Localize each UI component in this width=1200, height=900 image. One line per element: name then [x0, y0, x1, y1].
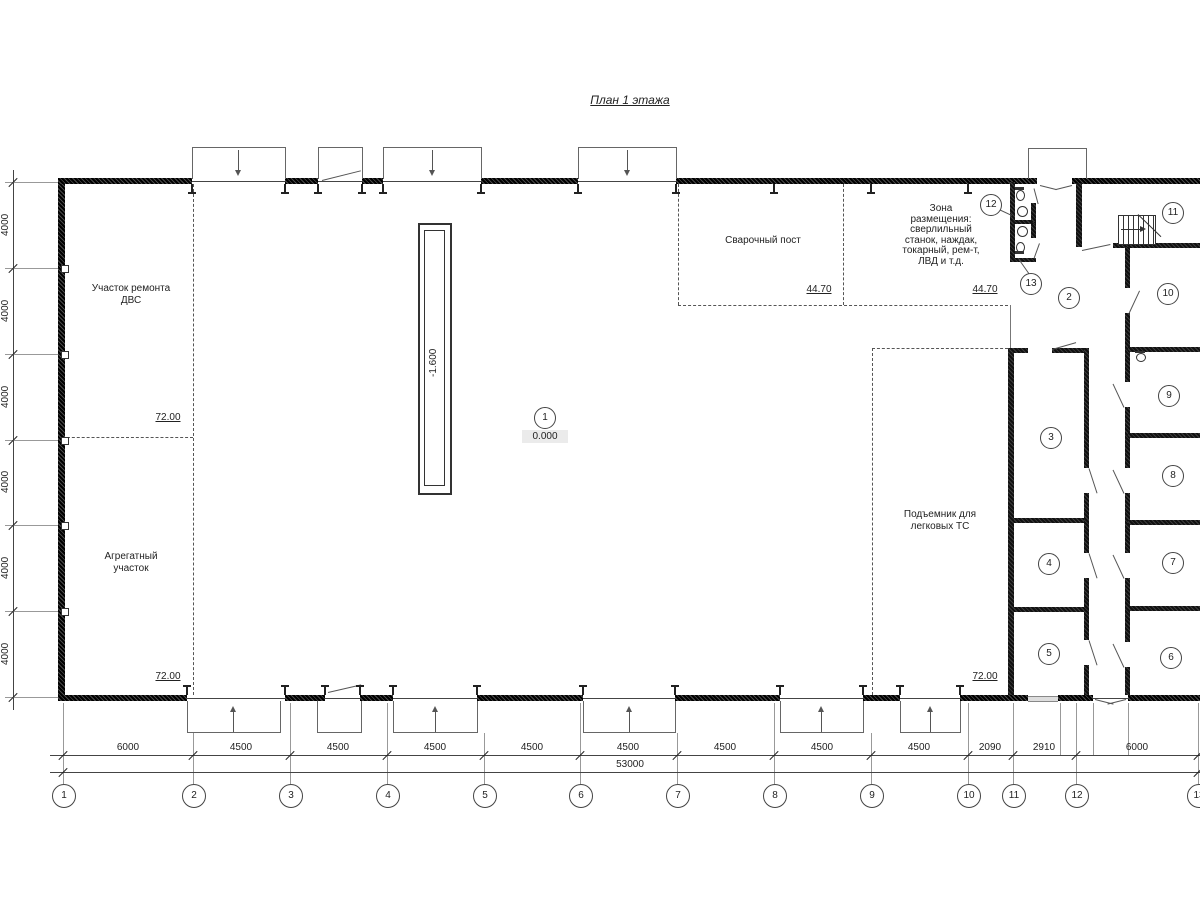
column-mark [779, 687, 781, 695]
column-mark [382, 184, 384, 192]
column-mark [61, 608, 69, 616]
dim-total-label: 53000 [600, 759, 660, 770]
dimension-line [50, 755, 1200, 756]
wall-segment [1125, 667, 1130, 695]
entry-arrow-icon [432, 150, 433, 174]
wall-segment [481, 178, 578, 184]
column-mark [899, 687, 901, 695]
toilet-icon [1015, 251, 1024, 254]
axis-bubble: 9 [860, 784, 884, 808]
wall-segment [863, 695, 900, 701]
dashed-boundary [62, 437, 193, 438]
column-mark [284, 687, 286, 695]
dimension-line [50, 772, 1200, 773]
wall-segment [675, 695, 780, 701]
wall-segment [960, 695, 1028, 701]
wall-segment [1076, 183, 1082, 247]
door-swing [1034, 188, 1039, 204]
column-mark [61, 522, 69, 530]
gate-canopy [317, 701, 362, 733]
wall-segment [1084, 348, 1089, 468]
door-swing [1082, 244, 1111, 251]
door-opening [318, 181, 362, 182]
dim-label: 4000 [0, 624, 12, 684]
door-swing [1055, 185, 1072, 190]
door-swing [1089, 553, 1098, 578]
area-value: 44.70 [963, 284, 1007, 295]
column-mark [773, 184, 775, 192]
wall-segment [1014, 518, 1088, 523]
floor-level-value: 0.000 [522, 430, 568, 443]
room-bubble: 4 [1038, 553, 1060, 575]
dim-label: 4000 [0, 195, 12, 255]
column-mark [61, 351, 69, 359]
axis-bubble: 1 [52, 784, 76, 808]
dim-label: 4500 [308, 742, 368, 753]
wall-segment [1010, 258, 1036, 262]
column-mark [361, 184, 363, 192]
column-mark [967, 184, 969, 192]
door-swing [1113, 644, 1125, 668]
dim-label: 2910 [1014, 742, 1074, 753]
room-bubble: 8 [1162, 465, 1184, 487]
toilet-icon [1016, 190, 1025, 201]
wall-segment [1031, 224, 1036, 238]
wall-segment [1125, 247, 1130, 288]
axis-bubble: 8 [763, 784, 787, 808]
gate-opening [187, 698, 285, 699]
column-mark [480, 184, 482, 192]
sink-icon [1136, 353, 1146, 362]
dim-label: 4500 [695, 742, 755, 753]
wall-segment [676, 178, 1037, 184]
gate-opening [393, 698, 477, 699]
column-mark [870, 184, 872, 192]
room-label-welding: Сварочный пост [688, 235, 838, 247]
door-opening [325, 698, 360, 699]
extension-line [1093, 703, 1094, 755]
area-value: 72.00 [148, 671, 188, 682]
room-bubble: 6 [1160, 647, 1182, 669]
axis-bubble: 3 [279, 784, 303, 808]
axis-bubble: 7 [666, 784, 690, 808]
dashed-boundary [843, 184, 844, 305]
wall-segment [1014, 607, 1088, 612]
wall-segment [360, 695, 393, 701]
area-value: 72.00 [148, 412, 188, 423]
dim-label: 4500 [211, 742, 271, 753]
gate-opening [383, 181, 481, 182]
column-mark [862, 687, 864, 695]
axis-bubble: 2 [182, 784, 206, 808]
dashed-boundary [678, 305, 1008, 306]
gate-opening [780, 698, 863, 699]
wall-segment [362, 178, 383, 184]
entry-arrow-icon [821, 708, 822, 732]
column-mark [359, 687, 361, 695]
dashed-boundary [678, 184, 679, 305]
area-value: 72.00 [963, 671, 1007, 682]
dashed-boundary [193, 184, 194, 695]
wall-segment [1128, 520, 1200, 525]
room-bubble: 7 [1162, 552, 1184, 574]
column-mark [284, 184, 286, 192]
room-bubble: 2 [1058, 287, 1080, 309]
door-swing [1129, 291, 1140, 314]
door-swing [1113, 384, 1125, 408]
dim-label: 4500 [405, 742, 465, 753]
wall-segment [1014, 348, 1028, 353]
wall-segment [1084, 493, 1089, 553]
door-swing [1113, 555, 1125, 579]
room-label-lift: Подъемник для легковых ТС [870, 509, 1010, 533]
room-label-aggregate: Агрегатный участок [61, 551, 201, 575]
axis-bubble: 13 [1187, 784, 1200, 808]
gate-opening [578, 181, 676, 182]
area-value: 44.70 [797, 284, 841, 295]
dim-label: 2090 [960, 742, 1020, 753]
door-swing [1034, 243, 1040, 258]
wall-segment [1128, 695, 1200, 701]
wall-segment [1031, 203, 1036, 222]
column-mark [675, 184, 677, 192]
dashed-boundary [872, 348, 1008, 349]
column-mark [392, 687, 394, 695]
column-mark [324, 687, 326, 695]
wall-segment [1128, 606, 1200, 611]
wall-segment [1084, 578, 1089, 640]
door-swing [1107, 699, 1126, 705]
entry-arrow-icon [627, 150, 628, 174]
axis-bubble: 4 [376, 784, 400, 808]
wall-segment [1128, 433, 1200, 438]
dim-label: 4500 [792, 742, 852, 753]
page-title: План 1 этажа [540, 93, 720, 107]
stairs-direction-arrow-icon [1121, 229, 1143, 230]
door-swing [1089, 468, 1098, 493]
window [1028, 696, 1058, 702]
gate-opening [583, 698, 675, 699]
wall-segment [58, 695, 187, 701]
zone-line [1010, 305, 1011, 348]
floor-plan-drawing: План 1 этажа [0, 0, 1200, 900]
entry-arrow-icon [435, 708, 436, 732]
dim-label: 6000 [1107, 742, 1167, 753]
axis-bubble: 12 [1065, 784, 1089, 808]
room-bubble: 3 [1040, 427, 1062, 449]
column-mark [582, 687, 584, 695]
column-mark [61, 437, 69, 445]
stairs-icon [1118, 215, 1156, 245]
column-mark [191, 184, 193, 192]
room-bubble: 1 [534, 407, 556, 429]
gate-opening [192, 181, 285, 182]
dim-label: 4500 [598, 742, 658, 753]
dim-label: 4500 [889, 742, 949, 753]
wall-segment [1052, 348, 1088, 353]
entry-arrow-icon [930, 708, 931, 732]
wall-segment [477, 695, 583, 701]
vestibule [1028, 148, 1087, 179]
room-bubble: 9 [1158, 385, 1180, 407]
dim-label: 4000 [0, 367, 12, 427]
wall-segment [1072, 178, 1200, 184]
extension-line [193, 733, 194, 784]
axis-bubble: 10 [957, 784, 981, 808]
axis-bubble: 11 [1002, 784, 1026, 808]
column-mark [317, 184, 319, 192]
column-mark [674, 687, 676, 695]
sink-icon [1017, 226, 1028, 237]
entry-arrow-icon [233, 708, 234, 732]
pit-level-value: -1.600 [428, 332, 439, 378]
axis-bubble: 6 [569, 784, 593, 808]
door-swing [1089, 640, 1098, 665]
column-mark [186, 687, 188, 695]
sink-icon [1017, 206, 1028, 217]
gate-opening [900, 698, 960, 699]
column-mark [61, 265, 69, 273]
extension-line [871, 733, 872, 784]
wall-segment [285, 178, 318, 184]
entry-arrow-icon [238, 150, 239, 174]
column-mark [959, 687, 961, 695]
room-label-repair: Участок ремонта ДВС [61, 283, 201, 307]
dim-label: 4500 [502, 742, 562, 753]
door-swing [1113, 470, 1125, 494]
entry-arrow-icon [629, 708, 630, 732]
dim-label: 6000 [98, 742, 158, 753]
axis-bubble: 5 [473, 784, 497, 808]
column-mark [476, 687, 478, 695]
wall-segment [58, 178, 192, 184]
room-label-zone: Зона размещения: сверлильный станок, наж… [878, 204, 1004, 267]
room-bubble: 10 [1157, 283, 1179, 305]
extension-line [677, 733, 678, 784]
dim-label: 4000 [0, 538, 12, 598]
room-bubble: 5 [1038, 643, 1060, 665]
dim-label: 4000 [0, 452, 12, 512]
wall-segment [1058, 695, 1093, 701]
room-bubble: 13 [1020, 273, 1042, 295]
extension-line [484, 733, 485, 784]
dim-label: 4000 [0, 281, 12, 341]
wall-segment [1084, 665, 1089, 695]
door-swing [1040, 185, 1057, 190]
room-bubble: 11 [1162, 202, 1184, 224]
column-mark [577, 184, 579, 192]
